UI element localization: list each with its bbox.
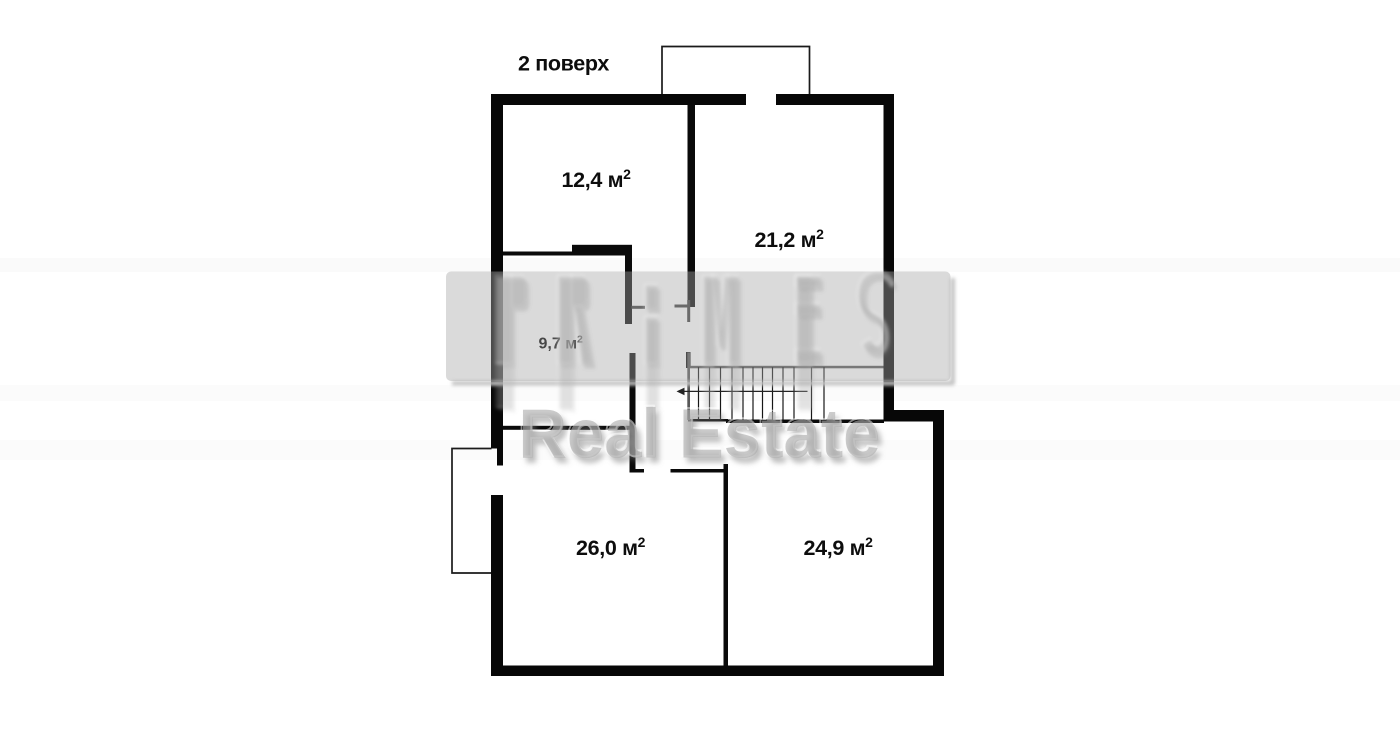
svg-text:24,9 м2: 24,9 м2 (804, 534, 874, 560)
svg-text:2 поверх: 2 поверх (518, 52, 609, 76)
svg-text:12,4 м2: 12,4 м2 (562, 166, 632, 192)
svg-text:26,0 м2: 26,0 м2 (576, 534, 646, 560)
svg-text:21,2 м2: 21,2 м2 (755, 226, 825, 252)
svg-text:Real Estate: Real Estate (519, 395, 881, 473)
